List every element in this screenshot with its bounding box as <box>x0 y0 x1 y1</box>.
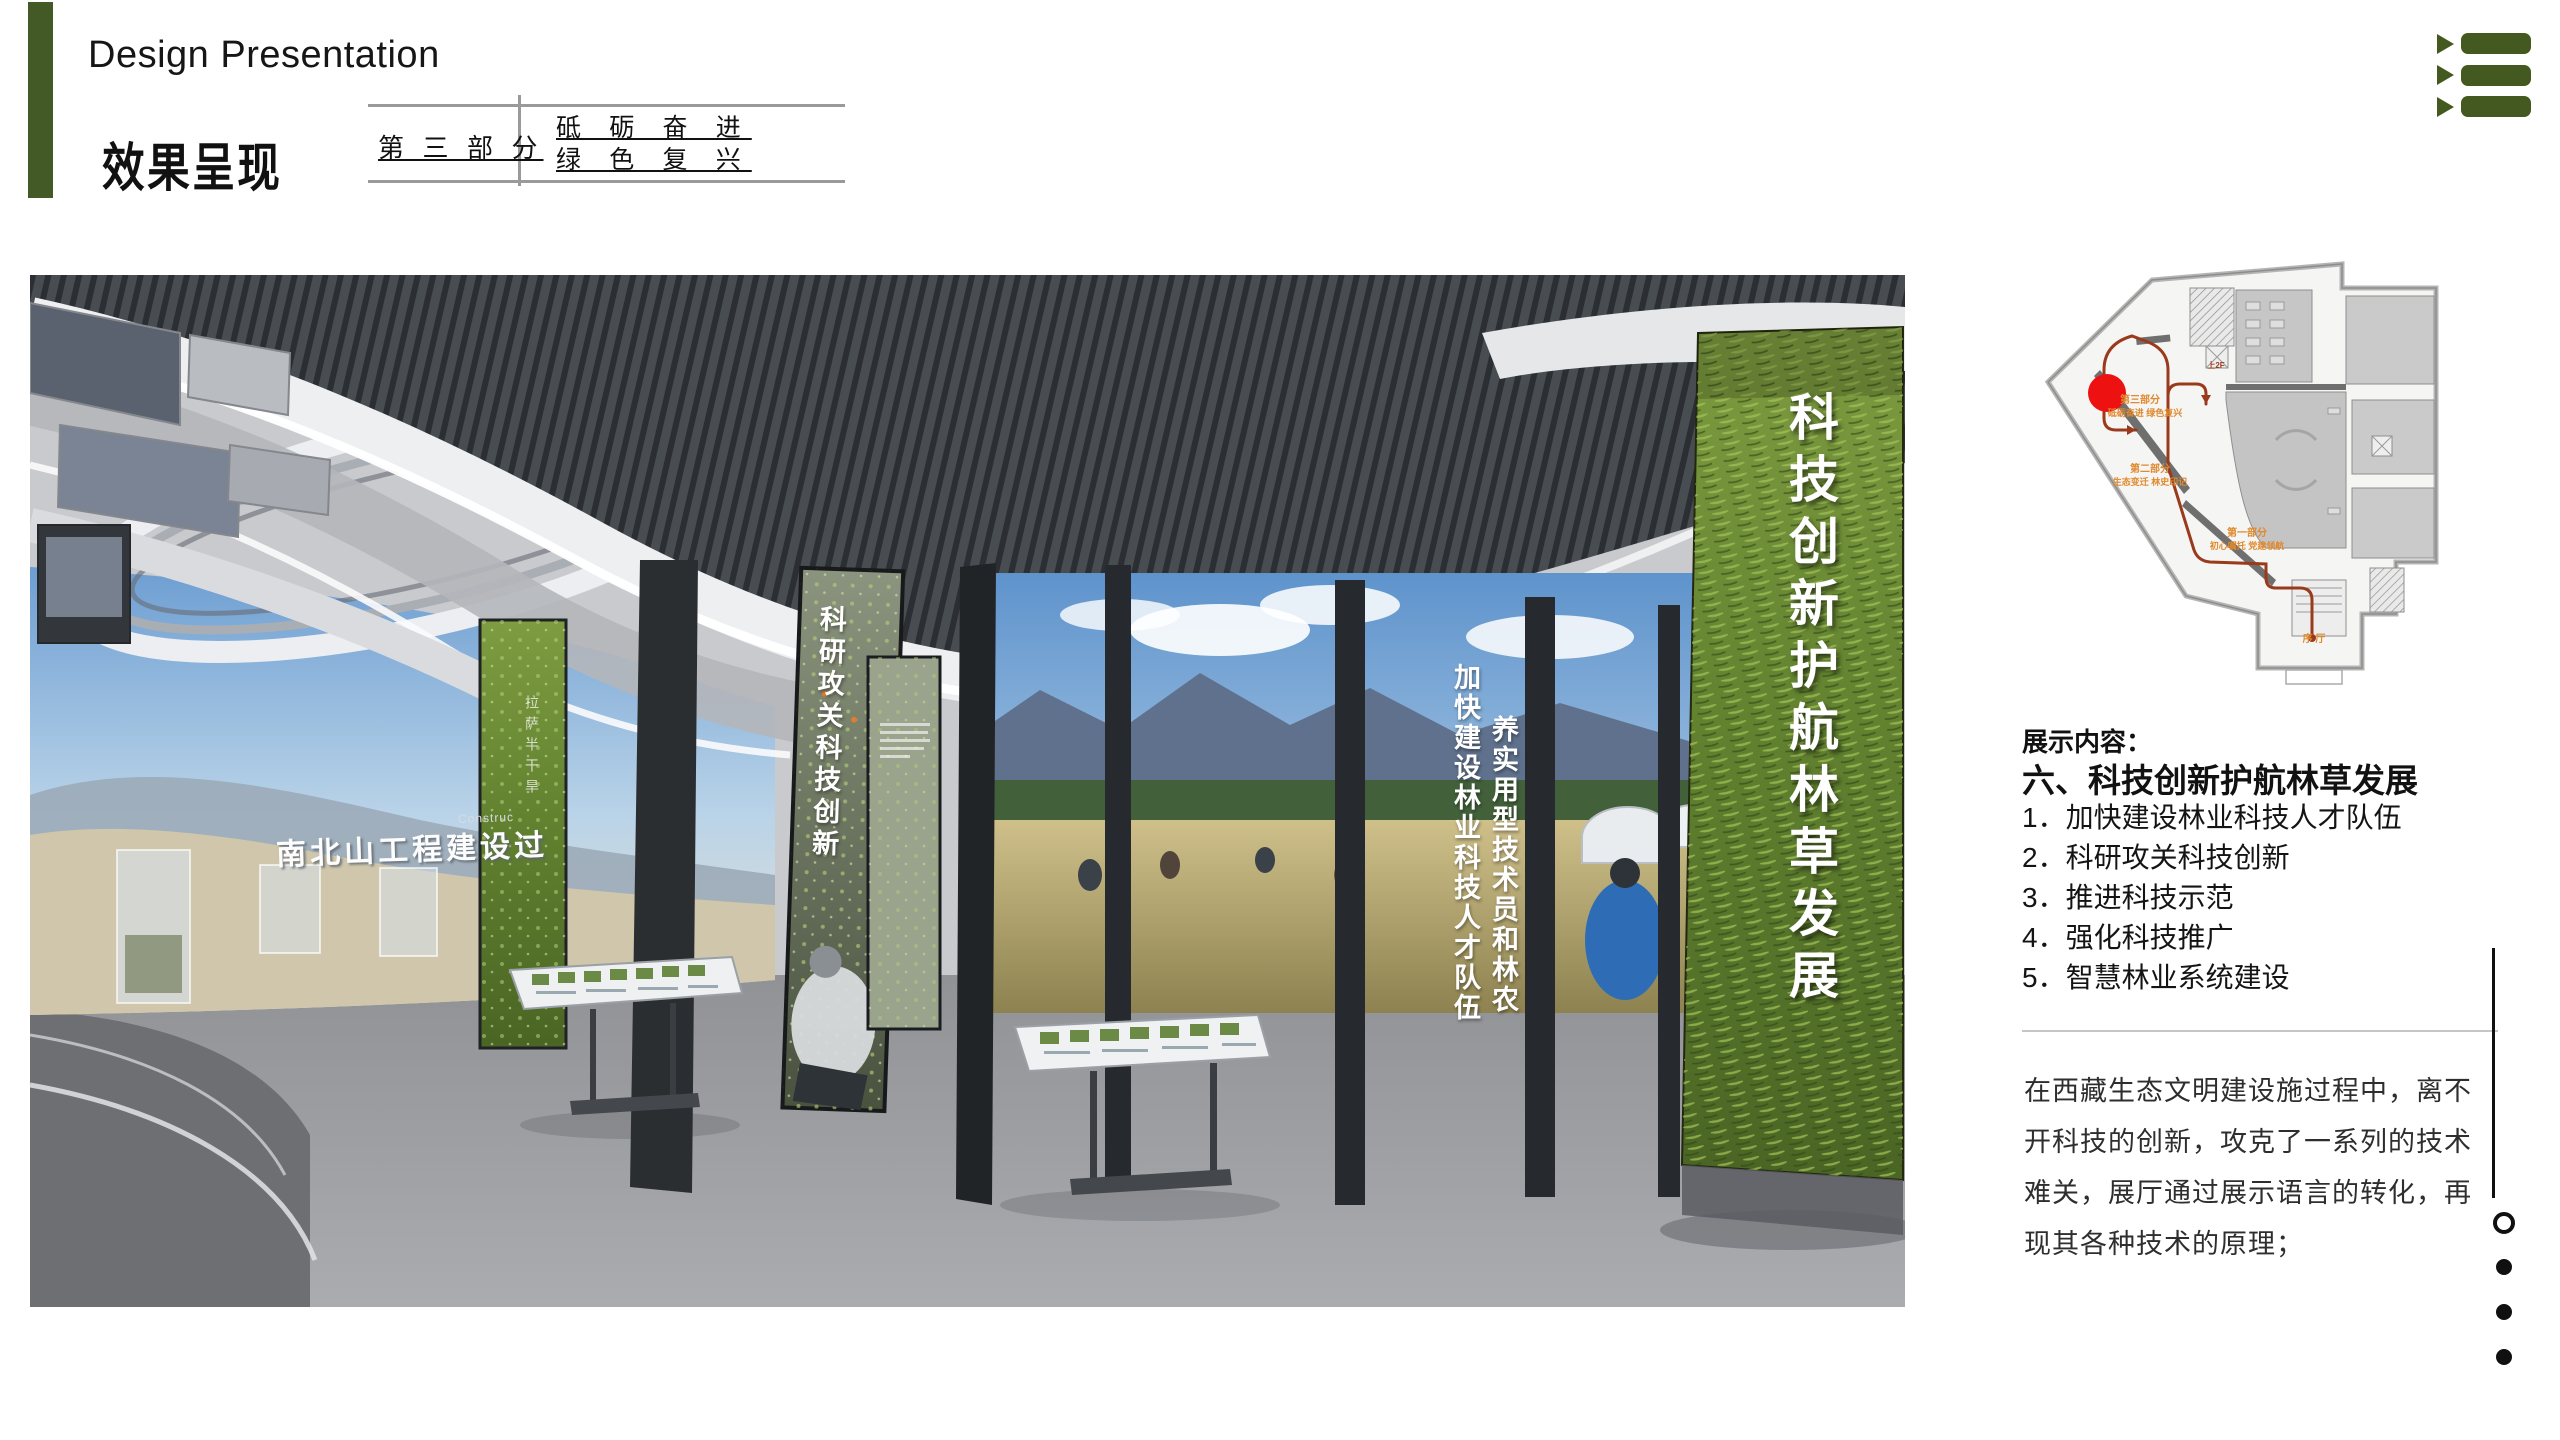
entrance-steps <box>2286 670 2342 684</box>
list-bar-icon <box>2461 33 2531 54</box>
page-nav-dot[interactable] <box>2496 1259 2512 1275</box>
slide: Design Presentation 效果呈现 第 三 部 分 砥 砺 奋 进… <box>0 0 2560 1440</box>
floor-plan-svg: 第三部分 砥砺奋进 绿色复兴 第二部分 生态变迁 林史印记 第一部分 初心嘱托 … <box>2040 250 2510 710</box>
paragraph-line: 在西藏生态文明建设施过程中，离不 <box>2024 1066 2494 1117</box>
accent-bar <box>28 2 53 198</box>
wall-3d-title-en: Construc <box>458 810 514 826</box>
paragraph-line: 开科技的创新，攻克了一系列的技术 <box>2024 1117 2494 1168</box>
page-nav-dot-active[interactable] <box>2493 1212 2515 1234</box>
toc-row <box>2437 65 2533 86</box>
content-item: 3．推进科技示范 <box>2022 878 2502 918</box>
content-item: 5．智慧林业系统建设 <box>2022 958 2502 998</box>
triangle-bullet-icon <box>2437 97 2454 117</box>
paragraph-line: 现其各种技术的原理； <box>2024 1219 2494 1270</box>
plan-label-part1-sub: 初心嘱托 党建领航 <box>2210 540 2285 551</box>
page-nav-dot[interactable] <box>2496 1349 2512 1365</box>
page-nav-dot[interactable] <box>2496 1304 2512 1320</box>
slogan-line-2: 绿 色 复 兴 <box>556 140 752 176</box>
plan-label-upstairs: 上2F <box>2207 360 2224 370</box>
list-bar-icon <box>2461 96 2531 117</box>
page-subtitle-en: Design Presentation <box>88 34 440 77</box>
grass-panel-title: 科技创新护航林草发展 <box>1774 391 1846 1011</box>
content-divider <box>2022 1030 2498 1032</box>
triangle-bullet-icon <box>2437 65 2454 85</box>
plan-label-part2: 第二部分 <box>2130 462 2170 475</box>
slogan-line-1: 砥 砺 奋 进 <box>556 108 752 144</box>
caption-panel <box>868 657 940 1029</box>
plan-label-lobby: 序 厅 <box>2303 632 2326 645</box>
content-item: 2．科研攻关科技创新 <box>2022 838 2502 878</box>
toc-list-icon[interactable] <box>2437 33 2533 117</box>
triangle-bullet-icon <box>2437 34 2454 54</box>
plan-label-part2-sub: 生态变迁 林史印记 <box>2113 476 2188 487</box>
side-rail-line <box>2492 948 2495 1198</box>
list-bar-icon <box>2461 65 2531 86</box>
content-section-title: 六、科技创新护航林草发展 <box>2022 754 2418 802</box>
render-scene <box>30 275 1905 1307</box>
content-item: 4．强化科技推广 <box>2022 918 2502 958</box>
content-item-list: 1．加快建设林业科技人才队伍2．科研攻关科技创新3．推进科技示范4．强化科技推广… <box>2022 798 2502 998</box>
part-label: 第 三 部 分 <box>378 128 514 165</box>
toc-row <box>2437 33 2533 54</box>
page-title: 效果呈现 <box>102 126 282 201</box>
side-panel-faint-text: 拉萨半干旱 <box>522 695 542 800</box>
content-item: 1．加快建设林业科技人才队伍 <box>2022 798 2502 838</box>
talent-text-col2: 养实用型技术员和林农 <box>1484 715 1523 1015</box>
toc-row <box>2437 96 2533 117</box>
plan-label-part3-sub: 砥砺奋进 绿色复兴 <box>2108 407 2183 418</box>
talent-text-col1: 加快建设林业科技人才队伍 <box>1446 663 1485 1023</box>
paragraph-line: 难关，展厅通过展示语言的转化，再 <box>2024 1168 2494 1219</box>
floor-plan: 第三部分 砥砺奋进 绿色复兴 第二部分 生态变迁 林史印记 第一部分 初心嘱托 … <box>2040 250 2510 710</box>
content-paragraph: 在西藏生态文明建设施过程中，离不开科技的创新，攻克了一系列的技术难关，展厅通过展… <box>2024 1066 2494 1270</box>
plan-label-part3: 第三部分 <box>2120 393 2160 406</box>
plan-label-part1: 第一部分 <box>2227 526 2267 539</box>
exhibition-render-image: 科技创新护航林草发展 加快建设林业科技人才队伍 养实用型技术员和林农 科研攻关科… <box>30 275 1905 1307</box>
current-location-marker <box>2088 374 2126 412</box>
